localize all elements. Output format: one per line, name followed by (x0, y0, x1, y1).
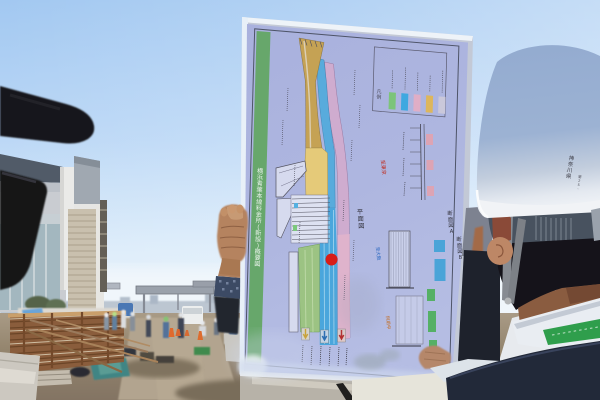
svg-text:A: A (450, 229, 454, 235)
svg-text:凡例: 凡例 (376, 89, 381, 101)
svg-text:断: 断 (447, 209, 452, 217)
svg-text:断: 断 (456, 235, 461, 243)
svg-text:面: 面 (457, 242, 462, 249)
svg-text:面: 面 (358, 216, 364, 223)
svg-text:面: 面 (448, 216, 453, 223)
svg-text:図: 図 (358, 223, 364, 230)
svg-text:平: 平 (357, 209, 363, 216)
svg-text:図: 図 (448, 222, 453, 229)
svg-text:図: 図 (457, 248, 462, 255)
